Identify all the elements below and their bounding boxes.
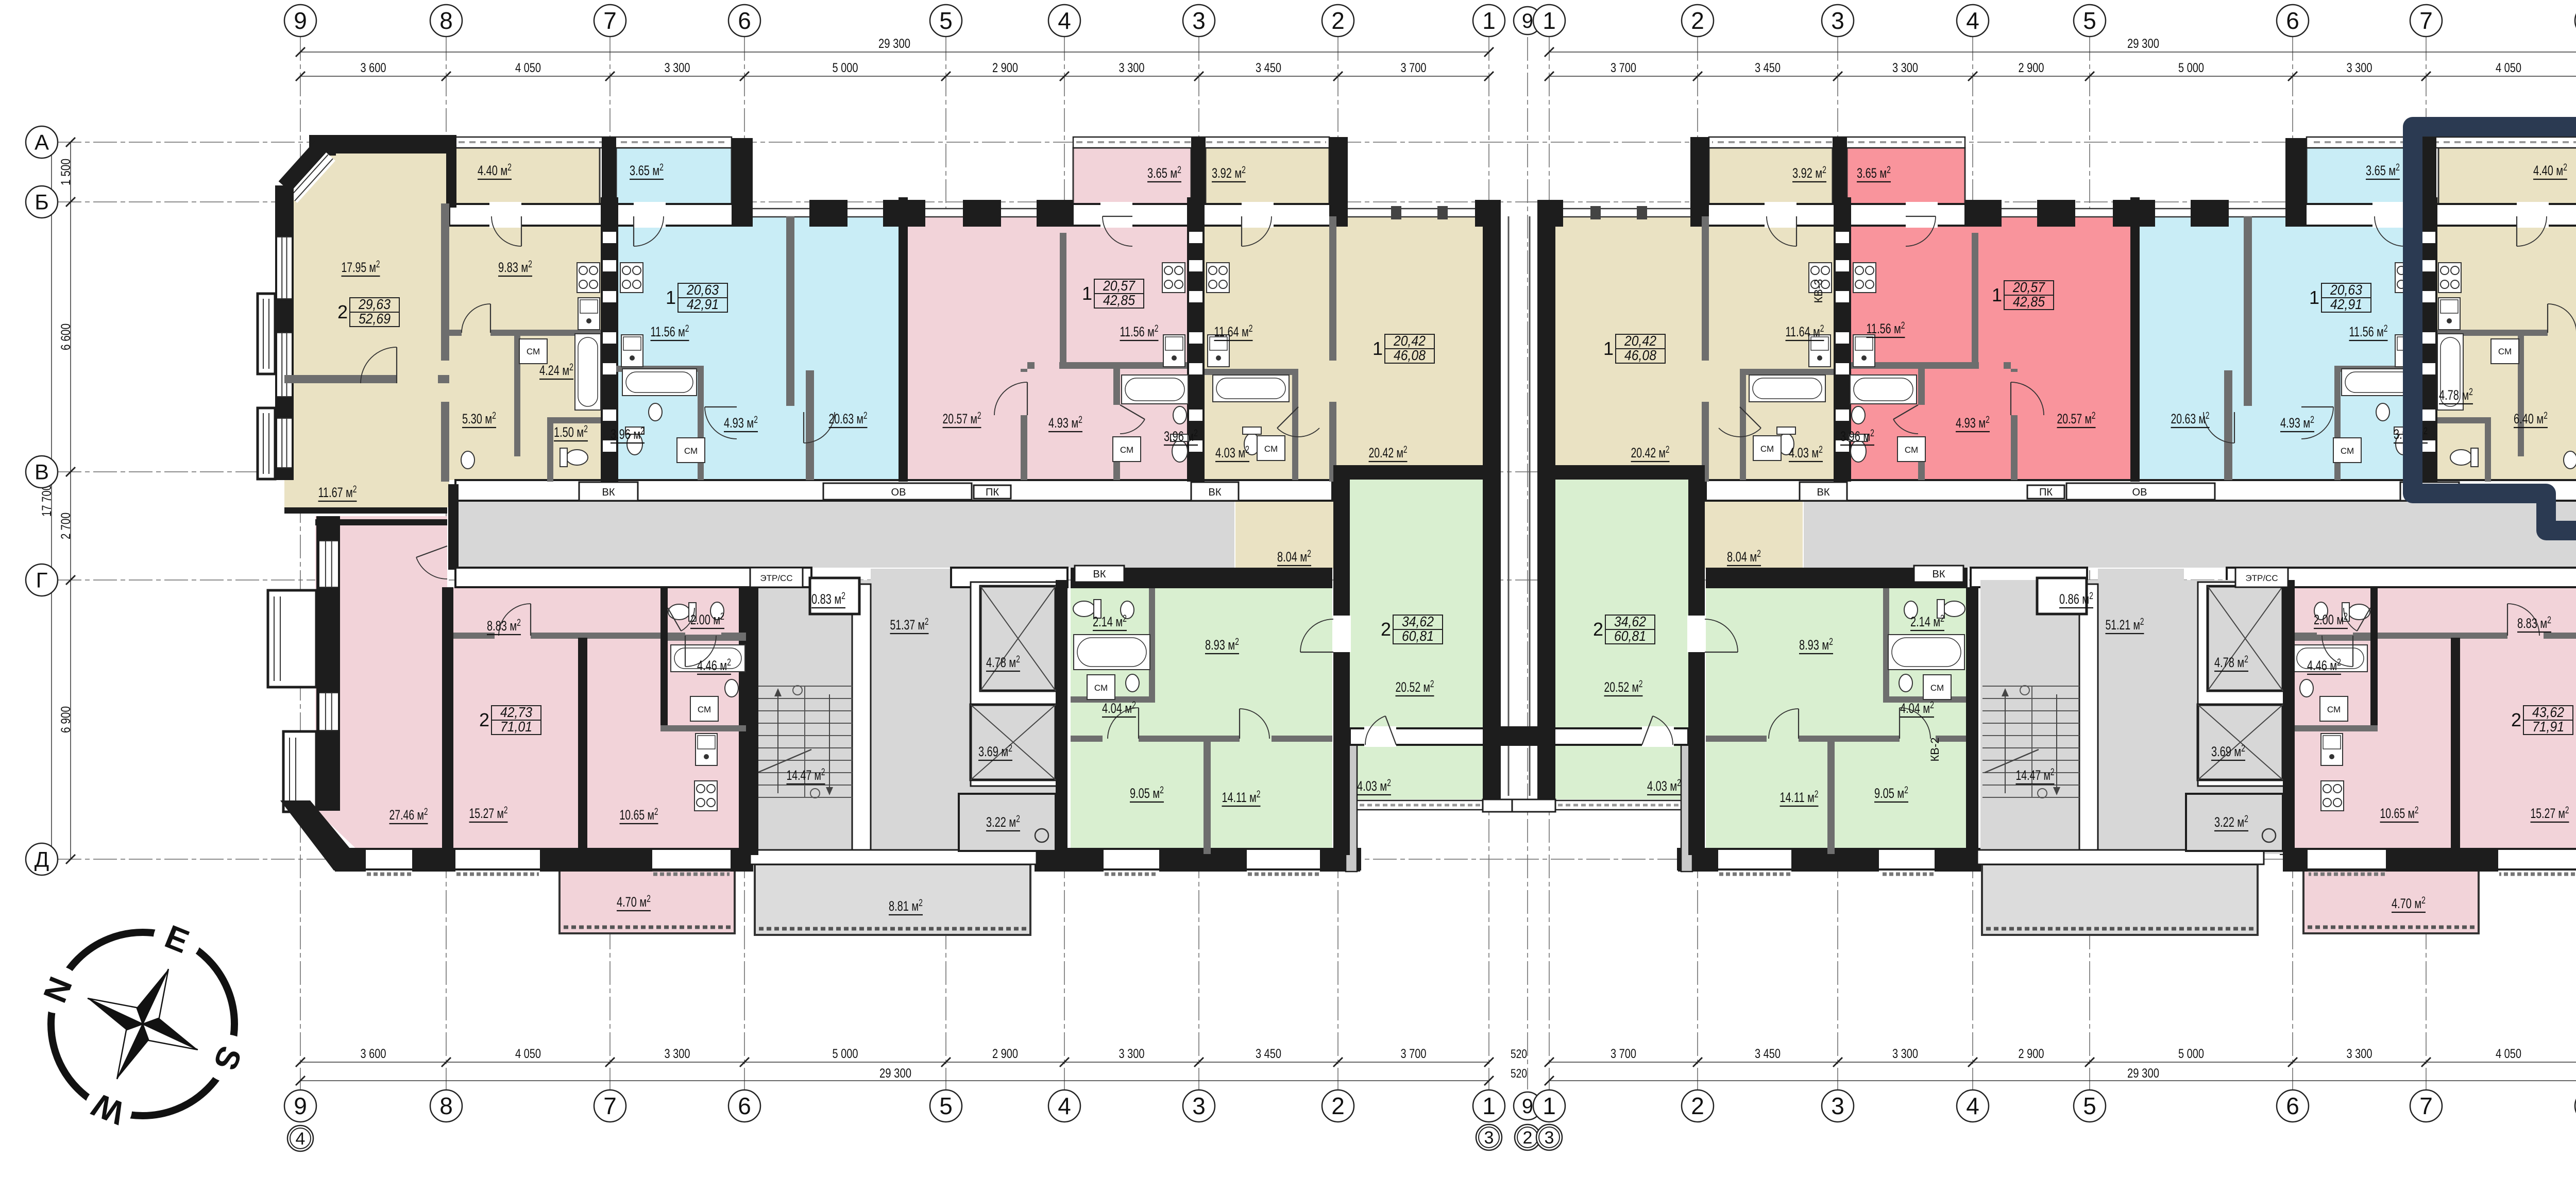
svg-text:4 050: 4 050 xyxy=(515,1047,541,1061)
svg-text:20.42 м2: 20.42 м2 xyxy=(1369,445,1408,460)
svg-text:3.22 м2: 3.22 м2 xyxy=(986,814,1020,830)
svg-text:3 300: 3 300 xyxy=(1119,1047,1145,1061)
svg-text:29,63: 29,63 xyxy=(358,296,391,312)
svg-text:0.83 м2: 0.83 м2 xyxy=(811,591,845,607)
svg-text:4.03 м2: 4.03 м2 xyxy=(1215,445,1249,460)
svg-text:5: 5 xyxy=(2083,1093,2096,1119)
svg-text:7: 7 xyxy=(603,7,617,34)
svg-text:60,81: 60,81 xyxy=(1614,628,1646,644)
svg-text:11.64 м2: 11.64 м2 xyxy=(1214,323,1253,339)
svg-text:3 600: 3 600 xyxy=(361,61,386,75)
svg-text:4: 4 xyxy=(296,1129,306,1149)
svg-text:20.57 м2: 20.57 м2 xyxy=(943,411,981,427)
svg-text:11.56 м2: 11.56 м2 xyxy=(2349,323,2388,339)
svg-text:1.50 м2: 1.50 м2 xyxy=(554,424,588,440)
svg-text:9.05 м2: 9.05 м2 xyxy=(1874,785,1908,801)
svg-text:4 050: 4 050 xyxy=(2496,1047,2521,1061)
svg-text:5: 5 xyxy=(939,7,953,34)
svg-text:ВК: ВК xyxy=(1933,569,1945,580)
svg-text:1: 1 xyxy=(1082,283,1092,304)
svg-text:СМ: СМ xyxy=(1905,445,1918,455)
svg-text:4.70 м2: 4.70 м2 xyxy=(2392,895,2426,911)
svg-text:17.95 м2: 17.95 м2 xyxy=(342,259,380,275)
svg-text:2: 2 xyxy=(1331,7,1345,34)
svg-text:ОВ: ОВ xyxy=(891,487,906,498)
svg-text:ВК: ВК xyxy=(1209,487,1222,498)
svg-text:4.46 м2: 4.46 м2 xyxy=(697,657,731,673)
svg-text:3 450: 3 450 xyxy=(1256,1047,1281,1061)
svg-text:42,91: 42,91 xyxy=(2330,296,2362,312)
svg-text:14.11 м2: 14.11 м2 xyxy=(1780,789,1819,805)
svg-text:4.04 м2: 4.04 м2 xyxy=(1102,700,1136,716)
svg-text:3.65 м2: 3.65 м2 xyxy=(630,162,664,178)
svg-text:520: 520 xyxy=(1511,1067,1527,1081)
svg-text:Г: Г xyxy=(36,568,48,592)
svg-text:1: 1 xyxy=(1543,1093,1556,1119)
svg-text:Д: Д xyxy=(35,847,49,872)
svg-text:4: 4 xyxy=(1058,7,1071,34)
svg-text:9: 9 xyxy=(294,1093,307,1119)
svg-text:2: 2 xyxy=(337,301,348,322)
svg-text:4.93 м2: 4.93 м2 xyxy=(1956,415,1990,431)
svg-text:20,42: 20,42 xyxy=(1624,333,1656,349)
svg-text:34,62: 34,62 xyxy=(1614,613,1646,629)
svg-text:9.83 м2: 9.83 м2 xyxy=(498,259,532,275)
svg-text:СМ: СМ xyxy=(1264,444,1278,454)
svg-text:СМ: СМ xyxy=(684,446,698,456)
svg-text:2: 2 xyxy=(1523,1128,1533,1148)
svg-text:8.04 м2: 8.04 м2 xyxy=(1277,549,1311,565)
svg-text:СМ: СМ xyxy=(2498,347,2512,356)
svg-text:ПК: ПК xyxy=(2039,487,2053,498)
svg-text:4.78 м2: 4.78 м2 xyxy=(986,654,1020,670)
svg-text:3: 3 xyxy=(1545,1128,1554,1148)
svg-text:3 450: 3 450 xyxy=(1755,1047,1781,1061)
svg-text:СМ: СМ xyxy=(698,705,711,714)
svg-text:8: 8 xyxy=(439,7,453,34)
svg-text:3.96 м2: 3.96 м2 xyxy=(611,426,645,442)
svg-text:7: 7 xyxy=(2419,7,2433,34)
svg-text:14.47 м2: 14.47 м2 xyxy=(787,767,825,783)
svg-text:29 300: 29 300 xyxy=(878,37,910,51)
svg-text:7: 7 xyxy=(603,1093,617,1119)
svg-text:4.40 м2: 4.40 м2 xyxy=(2533,162,2567,178)
svg-text:3 700: 3 700 xyxy=(1401,1047,1427,1061)
svg-text:3 700: 3 700 xyxy=(1611,61,1636,75)
svg-text:9.05 м2: 9.05 м2 xyxy=(1130,785,1164,801)
svg-text:СМ: СМ xyxy=(1094,683,1108,693)
svg-text:2 900: 2 900 xyxy=(992,1047,1018,1061)
svg-text:3.96 м2: 3.96 м2 xyxy=(1164,428,1198,444)
svg-text:3: 3 xyxy=(1831,7,1844,34)
svg-text:5: 5 xyxy=(2083,7,2096,34)
svg-text:2.14 м2: 2.14 м2 xyxy=(1093,613,1127,629)
svg-text:3 300: 3 300 xyxy=(2347,61,2372,75)
svg-text:3.22 м2: 3.22 м2 xyxy=(2214,814,2248,830)
svg-text:4.93 м2: 4.93 м2 xyxy=(1048,415,1082,431)
svg-text:3 450: 3 450 xyxy=(1755,61,1781,75)
svg-text:3.96 м2: 3.96 м2 xyxy=(1840,428,1874,444)
svg-text:3.92 м2: 3.92 м2 xyxy=(1212,165,1246,181)
svg-text:0.86 м2: 0.86 м2 xyxy=(2059,591,2093,607)
svg-text:3 600: 3 600 xyxy=(361,1047,386,1061)
svg-text:14.47 м2: 14.47 м2 xyxy=(2016,767,2055,783)
svg-text:1: 1 xyxy=(1543,7,1556,34)
svg-text:46,08: 46,08 xyxy=(1394,347,1426,363)
svg-text:2.00 м2: 2.00 м2 xyxy=(2314,611,2348,627)
svg-text:3.69 м2: 3.69 м2 xyxy=(2211,743,2245,759)
svg-text:20,63: 20,63 xyxy=(2330,282,2362,298)
svg-text:3.65 м2: 3.65 м2 xyxy=(1857,165,1891,181)
svg-text:7: 7 xyxy=(2419,1093,2433,1119)
svg-text:42,85: 42,85 xyxy=(1103,292,1135,308)
svg-text:6 600: 6 600 xyxy=(59,323,73,350)
svg-text:4.03 м2: 4.03 м2 xyxy=(1357,778,1391,794)
svg-text:4: 4 xyxy=(1966,1093,1979,1119)
svg-text:4.03 м2: 4.03 м2 xyxy=(1647,778,1681,794)
svg-text:4.46 м2: 4.46 м2 xyxy=(2307,657,2341,673)
svg-text:СМ: СМ xyxy=(1930,683,1944,693)
svg-text:3: 3 xyxy=(1484,1128,1494,1148)
svg-text:3 300: 3 300 xyxy=(1892,61,1918,75)
svg-text:3 700: 3 700 xyxy=(1401,61,1427,75)
svg-text:3: 3 xyxy=(1192,1093,1206,1119)
svg-text:4: 4 xyxy=(1966,7,1979,34)
svg-text:8.04 м2: 8.04 м2 xyxy=(1727,549,1761,565)
svg-text:520: 520 xyxy=(1511,1047,1527,1061)
svg-text:2 900: 2 900 xyxy=(2019,1047,2044,1061)
svg-text:51.37 м2: 51.37 м2 xyxy=(890,617,929,633)
svg-text:6: 6 xyxy=(738,1093,751,1119)
svg-text:2.14 м2: 2.14 м2 xyxy=(1910,613,1944,629)
svg-text:ВК: ВК xyxy=(602,487,615,498)
svg-text:6: 6 xyxy=(2286,7,2299,34)
svg-text:29 300: 29 300 xyxy=(879,1066,911,1081)
svg-text:20,57: 20,57 xyxy=(2012,279,2045,295)
svg-text:1: 1 xyxy=(1992,284,2002,305)
svg-text:ПК: ПК xyxy=(986,487,999,498)
svg-text:3 300: 3 300 xyxy=(2347,1047,2372,1061)
svg-text:71,01: 71,01 xyxy=(500,719,532,735)
svg-text:2: 2 xyxy=(2511,709,2521,730)
svg-text:10.65 м2: 10.65 м2 xyxy=(2380,805,2419,821)
svg-text:4.03 м2: 4.03 м2 xyxy=(1789,445,1823,460)
svg-text:1 500: 1 500 xyxy=(59,159,73,185)
svg-text:8.93 м2: 8.93 м2 xyxy=(1205,637,1239,653)
svg-text:3 450: 3 450 xyxy=(1256,61,1281,75)
svg-text:СМ: СМ xyxy=(2327,705,2341,714)
svg-text:20.63 м2: 20.63 м2 xyxy=(2171,411,2210,427)
svg-text:14.11 м2: 14.11 м2 xyxy=(1222,789,1261,805)
svg-text:3: 3 xyxy=(1831,1093,1844,1119)
svg-text:1: 1 xyxy=(1482,1093,1496,1119)
svg-text:4.93 м2: 4.93 м2 xyxy=(2280,415,2314,431)
svg-text:8.83 м2: 8.83 м2 xyxy=(2517,615,2551,631)
svg-text:34,62: 34,62 xyxy=(1402,613,1434,629)
svg-text:5: 5 xyxy=(939,1093,953,1119)
svg-text:51.21 м2: 51.21 м2 xyxy=(2106,617,2144,633)
svg-text:2: 2 xyxy=(1331,1093,1345,1119)
svg-text:В: В xyxy=(35,460,49,484)
svg-text:2: 2 xyxy=(1593,619,1603,640)
svg-text:6: 6 xyxy=(738,7,751,34)
svg-text:1: 1 xyxy=(1372,338,1383,359)
svg-text:15.27 м2: 15.27 м2 xyxy=(2531,805,2569,821)
svg-text:8.81 м2: 8.81 м2 xyxy=(889,898,923,914)
svg-text:20,42: 20,42 xyxy=(1393,333,1426,349)
svg-text:ВК: ВК xyxy=(1093,569,1106,580)
svg-text:2: 2 xyxy=(1691,1093,1704,1119)
svg-text:4.04 м2: 4.04 м2 xyxy=(1900,700,1934,716)
svg-text:ОВ: ОВ xyxy=(2132,487,2147,498)
svg-text:8.83 м2: 8.83 м2 xyxy=(487,618,521,634)
svg-text:9: 9 xyxy=(294,7,307,34)
svg-text:6 900: 6 900 xyxy=(59,706,73,733)
svg-text:17 700: 17 700 xyxy=(40,485,54,517)
svg-text:КВ-2: КВ-2 xyxy=(1928,737,1941,761)
svg-text:4.93 м2: 4.93 м2 xyxy=(724,415,758,431)
svg-text:А: А xyxy=(35,130,49,155)
svg-text:20.57 м2: 20.57 м2 xyxy=(2057,411,2096,427)
svg-text:4.40 м2: 4.40 м2 xyxy=(478,162,512,178)
svg-text:29 300: 29 300 xyxy=(2127,1066,2159,1081)
svg-text:10.65 м2: 10.65 м2 xyxy=(620,807,658,823)
svg-text:46,08: 46,08 xyxy=(1624,347,1656,363)
svg-text:27.46 м2: 27.46 м2 xyxy=(389,807,428,823)
svg-text:5.30 м2: 5.30 м2 xyxy=(462,411,496,427)
svg-text:5 000: 5 000 xyxy=(2178,61,2204,75)
svg-text:2: 2 xyxy=(1691,7,1704,34)
svg-text:8: 8 xyxy=(439,1093,453,1119)
svg-text:8.93 м2: 8.93 м2 xyxy=(1799,637,1833,653)
svg-text:29 300: 29 300 xyxy=(2127,37,2159,51)
svg-text:1: 1 xyxy=(1482,7,1496,34)
svg-text:СМ: СМ xyxy=(527,347,540,356)
svg-text:52,69: 52,69 xyxy=(359,311,391,327)
svg-text:3 300: 3 300 xyxy=(665,61,690,75)
svg-text:15.27 м2: 15.27 м2 xyxy=(469,805,508,821)
svg-text:1: 1 xyxy=(1603,338,1614,359)
svg-text:11.56 м2: 11.56 м2 xyxy=(1867,320,1905,336)
svg-text:20,57: 20,57 xyxy=(1103,278,1136,294)
svg-text:СМ: СМ xyxy=(1760,444,1774,454)
svg-text:1: 1 xyxy=(666,287,676,308)
svg-text:СМ: СМ xyxy=(1120,445,1133,455)
svg-text:6.40 м2: 6.40 м2 xyxy=(2514,411,2548,427)
svg-text:3 700: 3 700 xyxy=(1611,1047,1636,1061)
svg-text:4 050: 4 050 xyxy=(515,61,541,75)
svg-text:4.70 м2: 4.70 м2 xyxy=(617,894,651,910)
svg-text:Б: Б xyxy=(35,190,49,214)
svg-text:71,91: 71,91 xyxy=(2532,719,2564,735)
svg-text:5 000: 5 000 xyxy=(833,61,858,75)
svg-text:ЭТР/СС: ЭТР/СС xyxy=(2245,573,2278,583)
svg-text:3 300: 3 300 xyxy=(1119,61,1145,75)
svg-text:2: 2 xyxy=(1381,619,1391,640)
svg-text:20.52 м2: 20.52 м2 xyxy=(1604,679,1643,695)
svg-text:9: 9 xyxy=(1522,10,1533,32)
svg-text:42,91: 42,91 xyxy=(687,296,719,312)
svg-text:11.67 м2: 11.67 м2 xyxy=(318,484,357,500)
svg-text:3.65 м2: 3.65 м2 xyxy=(2366,162,2400,178)
svg-text:20.63 м2: 20.63 м2 xyxy=(829,411,868,427)
svg-text:4.78 м2: 4.78 м2 xyxy=(2214,654,2248,670)
svg-text:4 050: 4 050 xyxy=(2496,61,2521,75)
svg-text:42,73: 42,73 xyxy=(500,704,532,720)
svg-text:3.92 м2: 3.92 м2 xyxy=(1792,165,1826,181)
svg-text:11.56 м2: 11.56 м2 xyxy=(651,323,689,339)
svg-text:3 300: 3 300 xyxy=(665,1047,690,1061)
svg-text:5 000: 5 000 xyxy=(2178,1047,2204,1061)
svg-text:3 300: 3 300 xyxy=(1892,1047,1918,1061)
svg-text:2: 2 xyxy=(479,709,489,730)
svg-text:1: 1 xyxy=(2309,287,2319,308)
svg-text:СМ: СМ xyxy=(2341,446,2354,456)
svg-text:2.00 м2: 2.00 м2 xyxy=(690,611,724,627)
svg-text:20.42 м2: 20.42 м2 xyxy=(1631,445,1670,460)
svg-text:КВ-3: КВ-3 xyxy=(1812,279,1825,303)
svg-text:2 900: 2 900 xyxy=(992,61,1018,75)
svg-text:4.78 м2: 4.78 м2 xyxy=(2439,387,2473,403)
svg-text:6: 6 xyxy=(2286,1093,2299,1119)
svg-text:5 000: 5 000 xyxy=(833,1047,858,1061)
svg-text:20.52 м2: 20.52 м2 xyxy=(1396,679,1434,695)
svg-text:2 900: 2 900 xyxy=(2019,61,2044,75)
svg-text:11.56 м2: 11.56 м2 xyxy=(1120,323,1159,339)
svg-text:42,85: 42,85 xyxy=(2013,294,2045,310)
svg-text:11.64 м2: 11.64 м2 xyxy=(1786,323,1824,339)
svg-text:3.69 м2: 3.69 м2 xyxy=(978,743,1012,759)
svg-text:2 700: 2 700 xyxy=(59,513,73,539)
svg-text:20,63: 20,63 xyxy=(686,282,719,298)
svg-text:4.24 м2: 4.24 м2 xyxy=(539,362,573,378)
svg-text:ВК: ВК xyxy=(1817,487,1830,498)
svg-text:60,81: 60,81 xyxy=(1402,628,1434,644)
svg-text:3: 3 xyxy=(1192,7,1206,34)
svg-text:ЭТР/СС: ЭТР/СС xyxy=(760,573,792,583)
svg-text:43,62: 43,62 xyxy=(2532,704,2564,720)
svg-text:4: 4 xyxy=(1058,1093,1071,1119)
svg-text:9: 9 xyxy=(1522,1095,1533,1118)
svg-text:3.65 м2: 3.65 м2 xyxy=(1147,165,1181,181)
